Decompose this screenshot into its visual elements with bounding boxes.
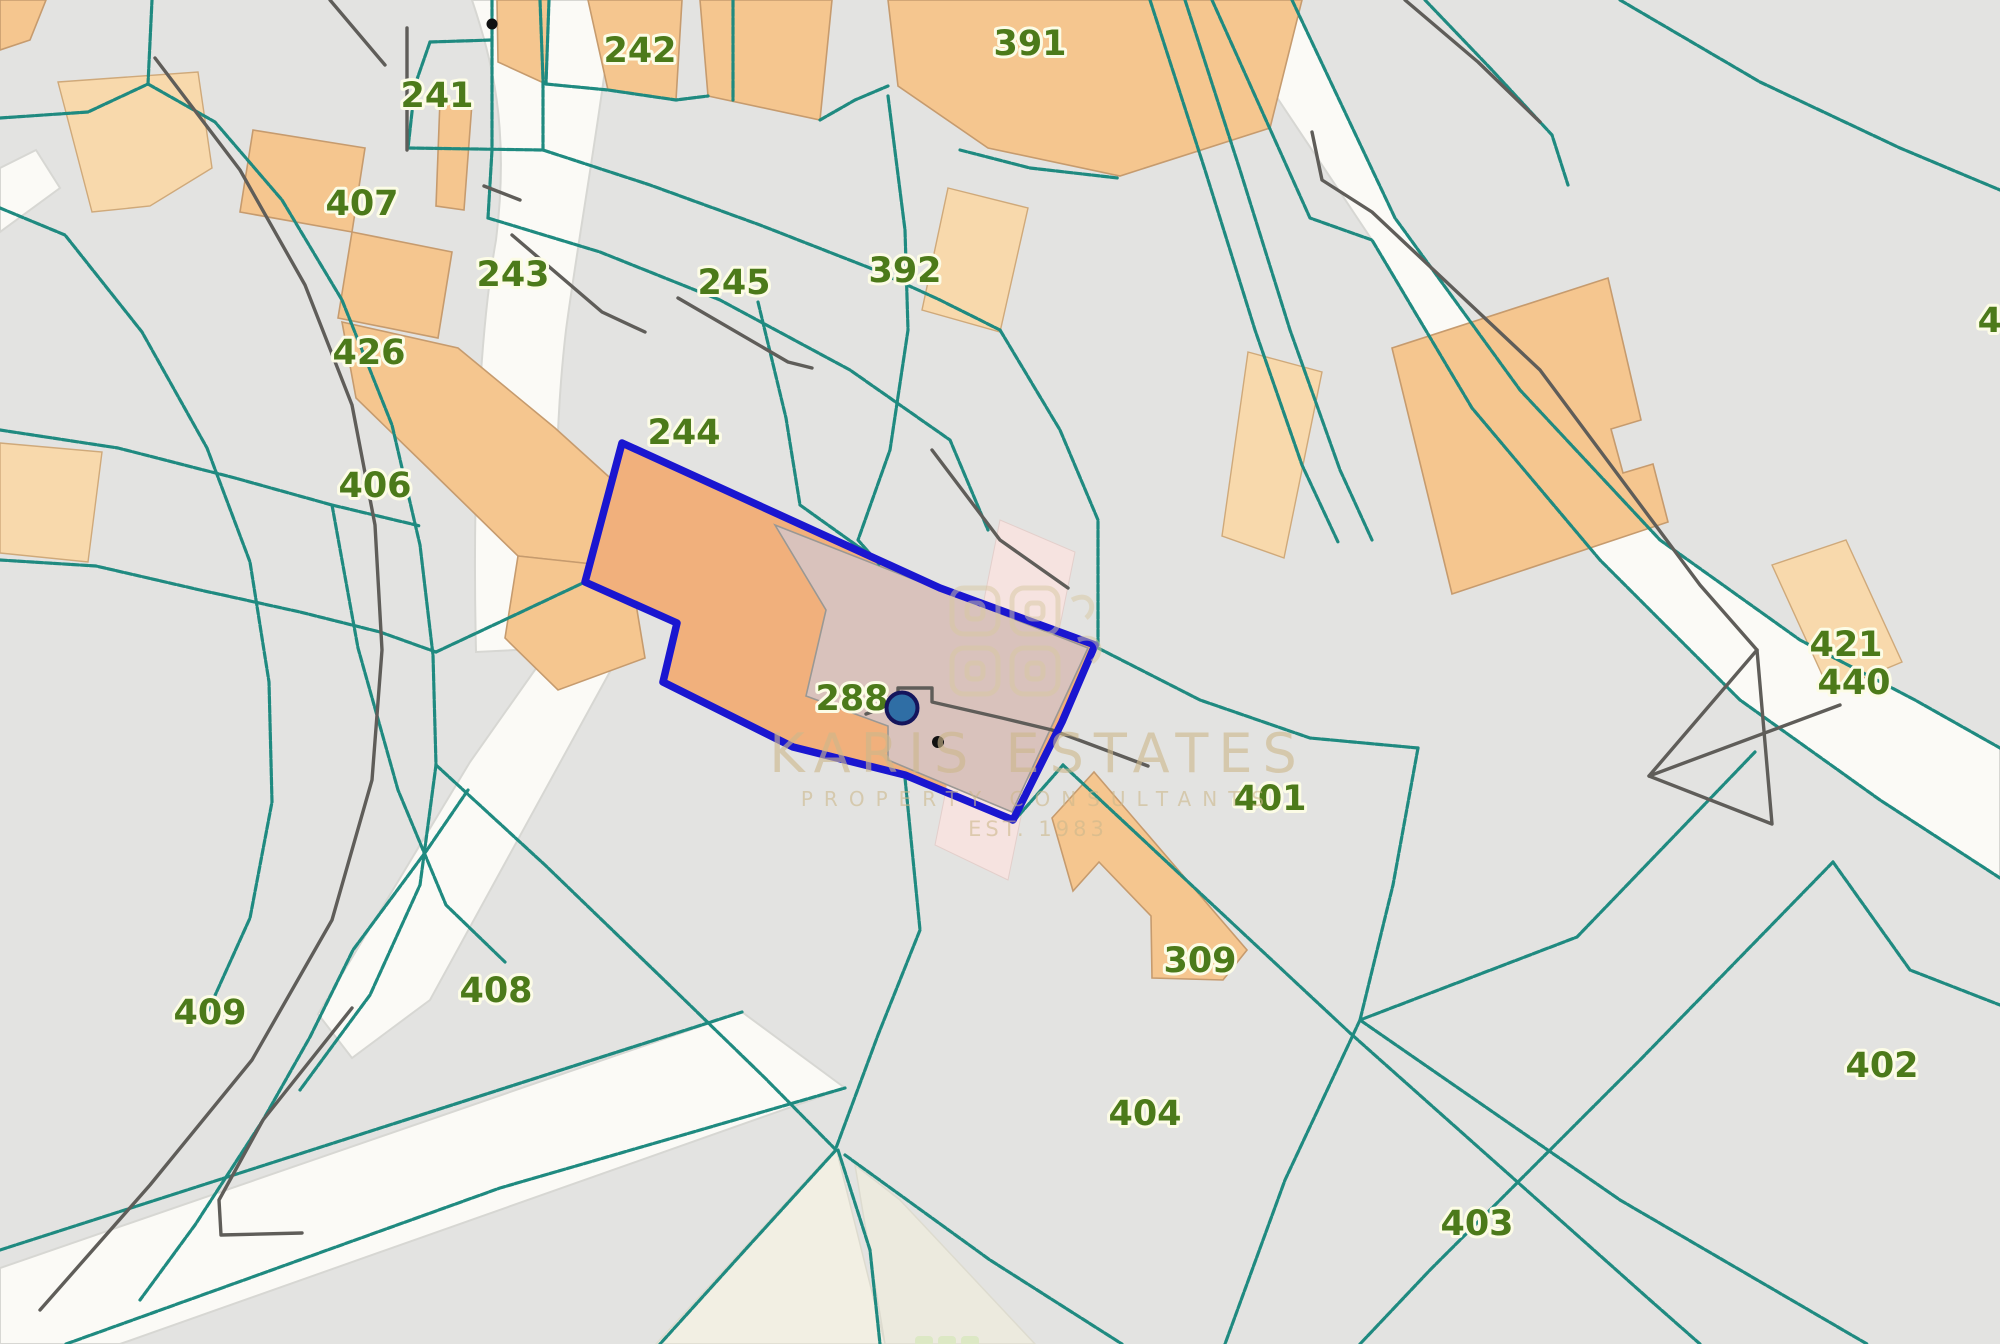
parcel-label-309: 309 (1163, 941, 1236, 981)
parcel-label-426: 426 (332, 333, 405, 373)
partial-label-sliver (915, 1336, 979, 1344)
parcel-label-403: 403 (1440, 1204, 1513, 1244)
parcel-label-409: 409 (173, 993, 246, 1033)
watermark-title: KARIS ESTATES (769, 722, 1307, 785)
parcel-label-407: 407 (325, 184, 398, 224)
point-dot-top (487, 19, 498, 30)
parcel-label-241: 241 (400, 76, 473, 116)
parcel-label-244: 244 (647, 413, 720, 453)
parcel-label-243: 243 (476, 255, 549, 295)
parcel-label-421: 421 (1809, 625, 1882, 665)
location-marker[interactable] (887, 693, 918, 724)
map-viewport: 242 241 407 243 426 245 244 392 391 406 … (0, 0, 2000, 1344)
parcel-label-402: 402 (1845, 1046, 1918, 1086)
parcel-label-245: 245 (697, 263, 770, 303)
parcel-label-392: 392 (868, 251, 941, 291)
parcel-label-406: 406 (338, 466, 411, 506)
parcel-label-440: 440 (1817, 663, 1890, 703)
parcel-label-408: 408 (459, 971, 532, 1011)
map-canvas[interactable]: 242 241 407 243 426 245 244 392 391 406 … (0, 0, 2000, 1344)
parcel-label-242: 242 (603, 31, 676, 71)
parcel-label-404: 404 (1108, 1094, 1181, 1134)
parcel-label-391: 391 (993, 24, 1066, 64)
parcel-label-288: 288 (815, 679, 888, 719)
parcel-label-43-partial: 43 (1978, 301, 2000, 341)
watermark-est: EST. 1983 (968, 817, 1108, 841)
watermark-subtitle: PROPERTY CONSULTANTS (801, 787, 1275, 811)
